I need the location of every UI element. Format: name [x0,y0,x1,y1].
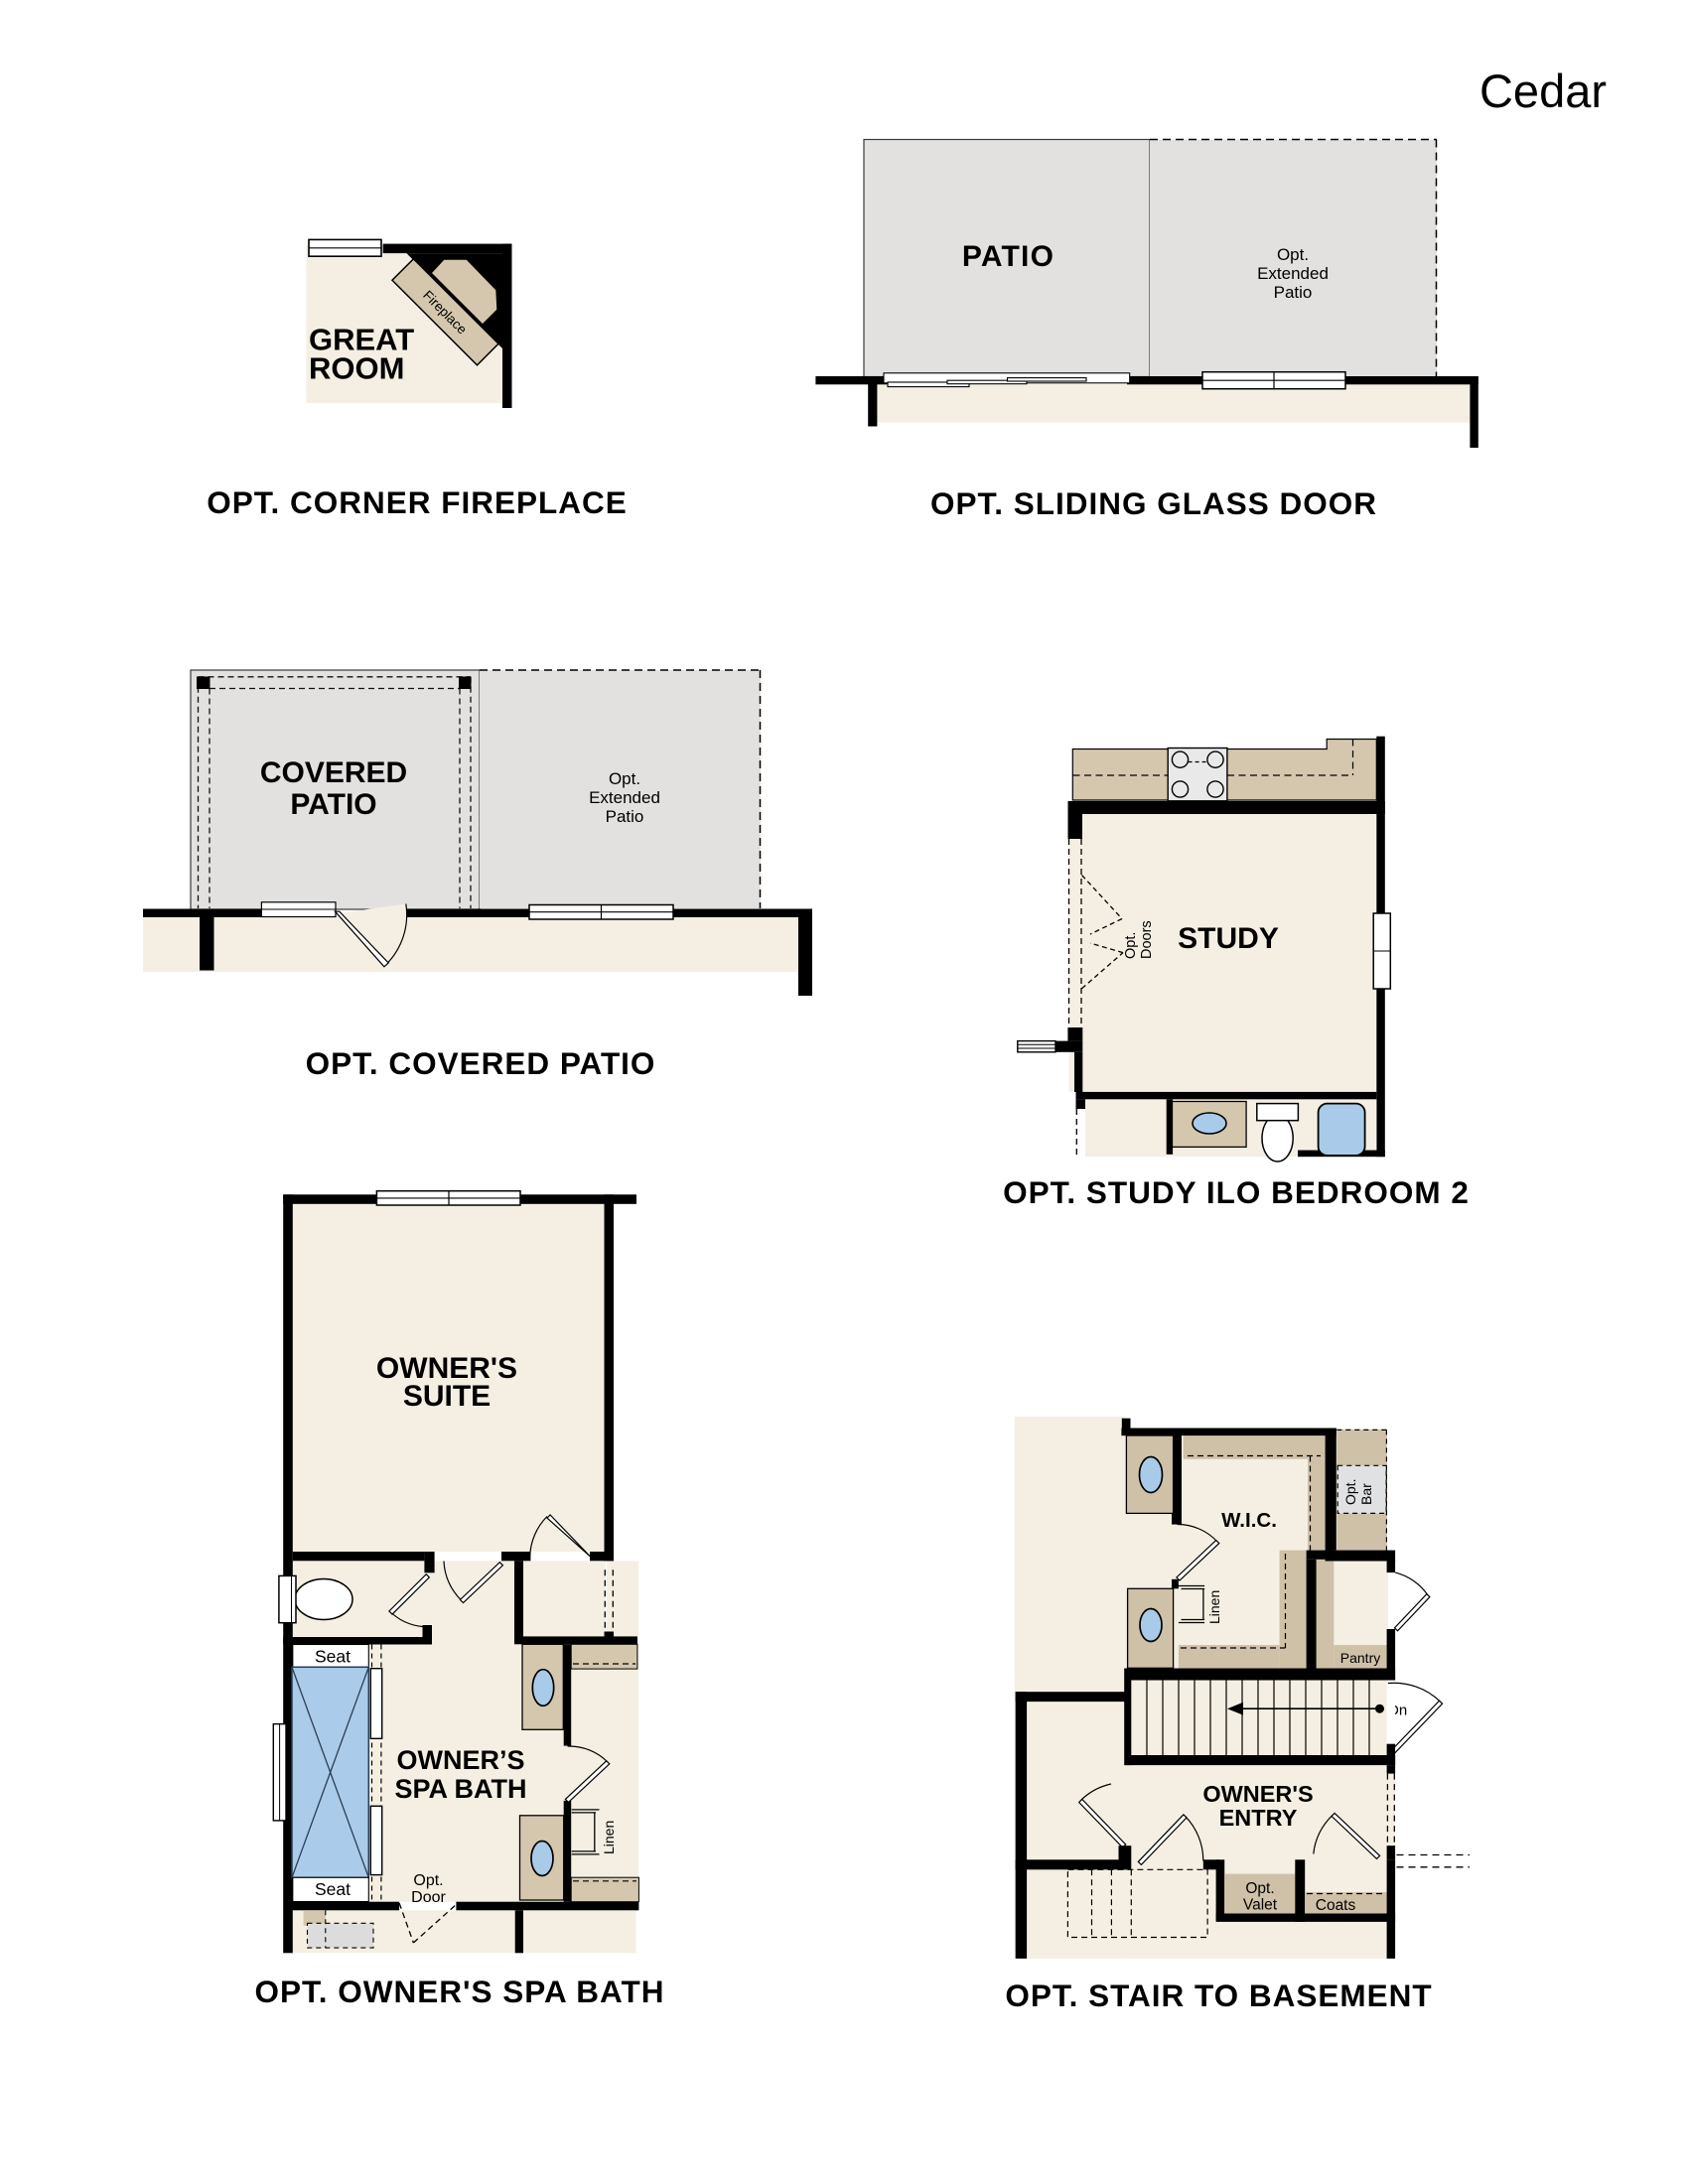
svg-text:Pantry: Pantry [1340,1650,1380,1666]
svg-text:Extended: Extended [1257,264,1329,283]
svg-text:Patio: Patio [1274,283,1313,302]
svg-text:W.I.C.: W.I.C. [1221,1509,1277,1532]
svg-text:OWNER'S: OWNER'S [1202,1781,1313,1807]
svg-text:Opt.: Opt. [413,1872,443,1889]
svg-text:PATIO: PATIO [962,240,1055,273]
svg-text:ROOM: ROOM [309,351,404,386]
svg-text:OWNER’S: OWNER’S [396,1745,524,1775]
svg-text:Door: Door [411,1889,446,1906]
svg-text:PATIO: PATIO [290,788,376,821]
svg-text:Opt.: Opt. [1245,1880,1274,1897]
svg-text:Coats: Coats [1316,1897,1356,1914]
svg-text:OPT. COVERED PATIO: OPT. COVERED PATIO [306,1045,656,1081]
svg-text:Opt.: Opt. [1342,1479,1358,1505]
svg-text:Doors: Doors [1139,920,1155,959]
svg-text:SPA BATH: SPA BATH [395,1774,527,1804]
svg-text:Linen: Linen [1206,1590,1222,1624]
svg-text:Seat: Seat [315,1879,351,1899]
svg-text:Opt.: Opt. [1277,245,1309,264]
svg-text:Opt.: Opt. [609,769,640,788]
svg-text:ENTRY: ENTRY [1219,1805,1298,1831]
svg-text:Linen: Linen [601,1821,617,1854]
svg-text:Seat: Seat [315,1647,351,1667]
svg-text:COVERED: COVERED [260,756,407,789]
svg-text:OPT. CORNER FIREPLACE: OPT. CORNER FIREPLACE [207,484,628,520]
svg-text:OPT. STUDY ILO BEDROOM 2: OPT. STUDY ILO BEDROOM 2 [1003,1174,1470,1210]
svg-text:Bar: Bar [1358,1483,1374,1505]
svg-text:OPT. SLIDING GLASS DOOR: OPT. SLIDING GLASS DOOR [930,485,1377,521]
svg-text:Cedar: Cedar [1479,65,1607,117]
svg-text:SUITE: SUITE [403,1380,491,1413]
svg-text:Opt.: Opt. [1123,932,1139,959]
svg-text:STUDY: STUDY [1178,922,1279,955]
svg-text:Valet: Valet [1243,1897,1278,1914]
svg-text:Patio: Patio [606,807,644,826]
svg-text:OPT. OWNER'S SPA BATH: OPT. OWNER'S SPA BATH [255,1974,665,2009]
svg-text:Extended: Extended [589,788,660,807]
svg-text:OPT. STAIR TO BASEMENT: OPT. STAIR TO BASEMENT [1005,1978,1432,2013]
